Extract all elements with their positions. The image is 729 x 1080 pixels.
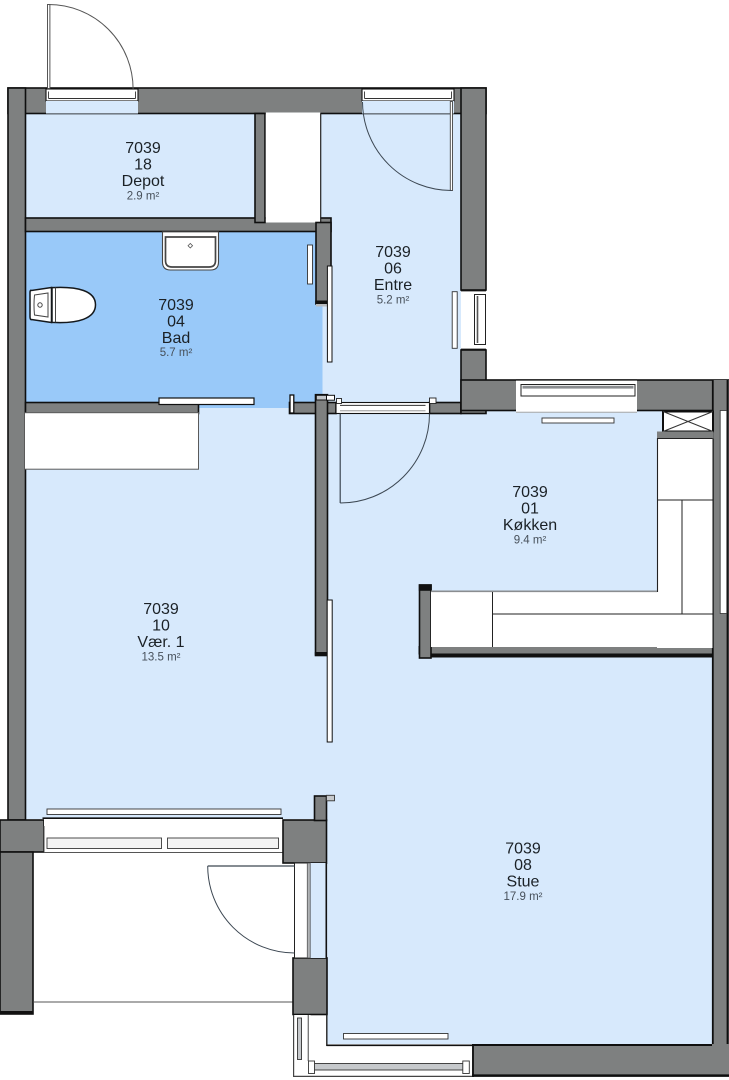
svg-text:7039: 7039 [375, 244, 411, 261]
svg-text:17.9 m²: 17.9 m² [504, 891, 543, 903]
svg-text:7039: 7039 [125, 140, 161, 157]
svg-text:Bad: Bad [162, 330, 190, 347]
svg-text:7039: 7039 [143, 601, 179, 618]
svg-text:06: 06 [384, 261, 402, 278]
svg-text:01: 01 [521, 501, 539, 518]
svg-text:Vær. 1: Vær. 1 [137, 634, 184, 651]
svg-text:13.5 m²: 13.5 m² [142, 652, 181, 664]
svg-text:Entre: Entre [374, 277, 412, 294]
svg-text:7039: 7039 [158, 297, 194, 314]
svg-text:04: 04 [167, 314, 185, 331]
svg-text:Depot: Depot [122, 173, 165, 190]
svg-text:10: 10 [152, 618, 170, 635]
svg-text:5.7 m²: 5.7 m² [160, 347, 193, 359]
svg-text:2.9 m²: 2.9 m² [127, 191, 160, 203]
svg-text:Køkken: Køkken [503, 517, 557, 534]
svg-text:08: 08 [514, 857, 532, 874]
svg-text:7039: 7039 [512, 484, 548, 501]
svg-text:5.2 m²: 5.2 m² [377, 295, 410, 307]
svg-text:18: 18 [134, 157, 152, 174]
svg-text:9.4 m²: 9.4 m² [514, 535, 547, 547]
svg-text:Stue: Stue [507, 874, 540, 891]
svg-text:7039: 7039 [505, 841, 541, 858]
